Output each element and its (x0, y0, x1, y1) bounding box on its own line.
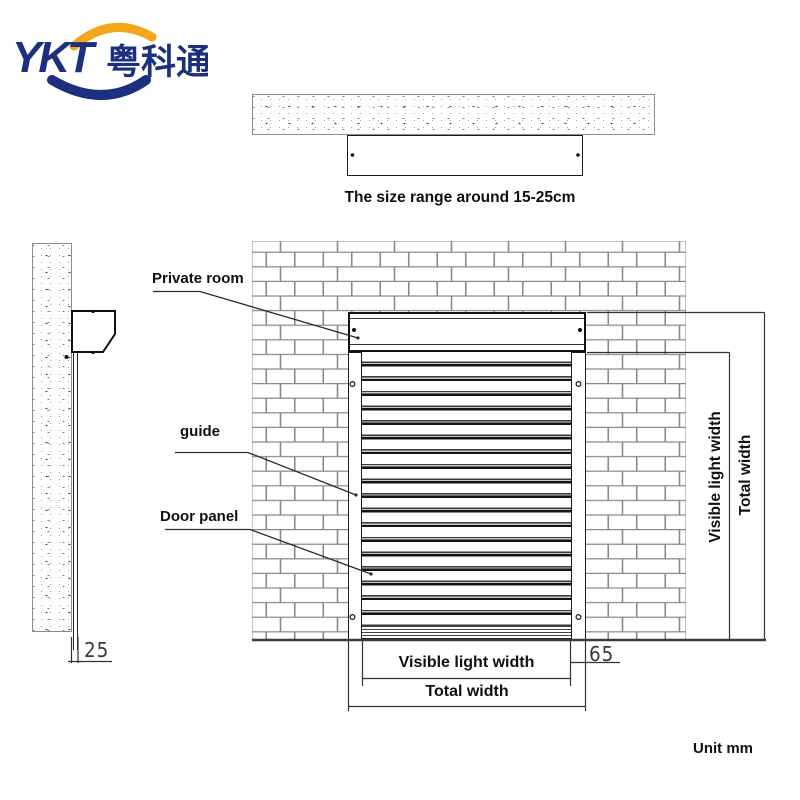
shutter-box-side-view (72, 311, 115, 352)
leader-private-room-tip (356, 336, 359, 339)
guide-width-dim: 65 (589, 642, 614, 666)
private-room-label: Private room (152, 270, 244, 287)
guide-screw-top-right (576, 382, 581, 387)
guide-screw-bottom-left (350, 615, 355, 620)
door-panel-label: Door panel (160, 508, 238, 525)
screw-dot-side-wall (65, 355, 69, 359)
leader-guide-tip (354, 493, 357, 496)
total-width-right-label: Total width (737, 400, 755, 550)
visible-light-width-right-label: Visible light width (707, 402, 725, 552)
leader-door-panel (165, 530, 371, 575)
guide-screw-top-left (350, 382, 355, 387)
dimension-overlay (0, 0, 800, 800)
screw-dot-topview-left (351, 153, 355, 157)
leader-door-panel-tip (369, 572, 372, 575)
screw-dot-box-left (352, 328, 356, 332)
leader-private-room (153, 292, 358, 339)
screw-dot-side-bottom (91, 351, 94, 354)
screw-dot-side-top (91, 310, 94, 313)
screw-dot-topview-right (576, 153, 580, 157)
total-width-bottom-label: Total width (348, 683, 586, 701)
guide-screw-bottom-right (576, 615, 581, 620)
leader-guide (175, 453, 356, 496)
visible-light-width-bottom-label: Visible light width (362, 654, 571, 672)
drawing-canvas: YKT 粤科通 The size range around 15-25cm 25 (0, 0, 800, 800)
screw-dot-box-right (578, 328, 582, 332)
guide-label: guide (180, 423, 220, 440)
unit-label: Unit mm (693, 740, 753, 757)
